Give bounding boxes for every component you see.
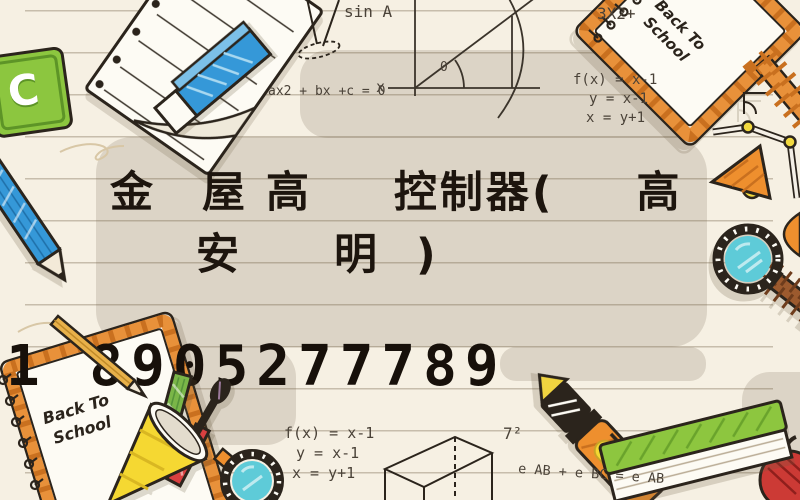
poster-background: ax2 + bx +c = 0 sin A x 0 3X2+ f(x) = x-… <box>0 0 800 500</box>
small-pencil-doodle <box>51 316 149 401</box>
doodles-front <box>0 0 800 500</box>
pencil-cup-doodle <box>108 372 235 500</box>
small-magnifier-doodle <box>214 449 279 500</box>
cup <box>108 395 215 500</box>
